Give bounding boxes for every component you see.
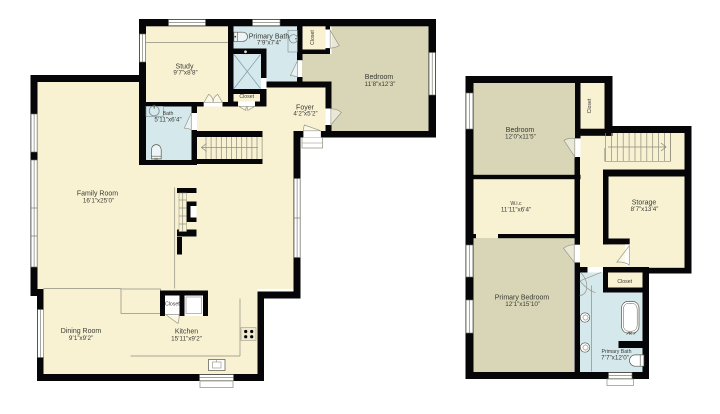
- svg-text:7’9”x7’4”: 7’9”x7’4”: [257, 39, 281, 46]
- svg-text:16’1”x25’0”: 16’1”x25’0”: [83, 198, 114, 205]
- svg-text:Closet: Closet: [617, 279, 632, 285]
- svg-text:8’7”x13’4”: 8’7”x13’4”: [631, 206, 659, 213]
- svg-text:11’11”x6’4”: 11’11”x6’4”: [501, 207, 531, 214]
- svg-text:Dining Room: Dining Room: [61, 328, 102, 335]
- svg-text:9’1”x9’2”: 9’1”x9’2”: [69, 335, 93, 342]
- svg-text:Kitchen: Kitchen: [175, 329, 198, 336]
- svg-text:7’7”x12’0”: 7’7”x12’0”: [601, 355, 629, 362]
- svg-text:12’1”x15’10”: 12’1”x15’10”: [505, 301, 540, 308]
- svg-text:11’8”x12’3”: 11’8”x12’3”: [365, 81, 396, 88]
- svg-text:5’11”x6’4”: 5’11”x6’4”: [154, 117, 181, 124]
- svg-text:Closet: Closet: [587, 98, 593, 113]
- svg-text:Closet: Closet: [310, 30, 316, 45]
- svg-text:9’7”x8’8”: 9’7”x8’8”: [173, 69, 197, 76]
- svg-text:Family Room: Family Room: [77, 191, 118, 198]
- svg-text:Closet: Closet: [165, 302, 180, 308]
- svg-text:4’2”x5’2”: 4’2”x5’2”: [293, 110, 317, 117]
- svg-text:12’0”x11’5”: 12’0”x11’5”: [505, 134, 536, 141]
- svg-text:15’11”x9’2”: 15’11”x9’2”: [171, 336, 202, 343]
- svg-text:Closet: Closet: [239, 94, 254, 100]
